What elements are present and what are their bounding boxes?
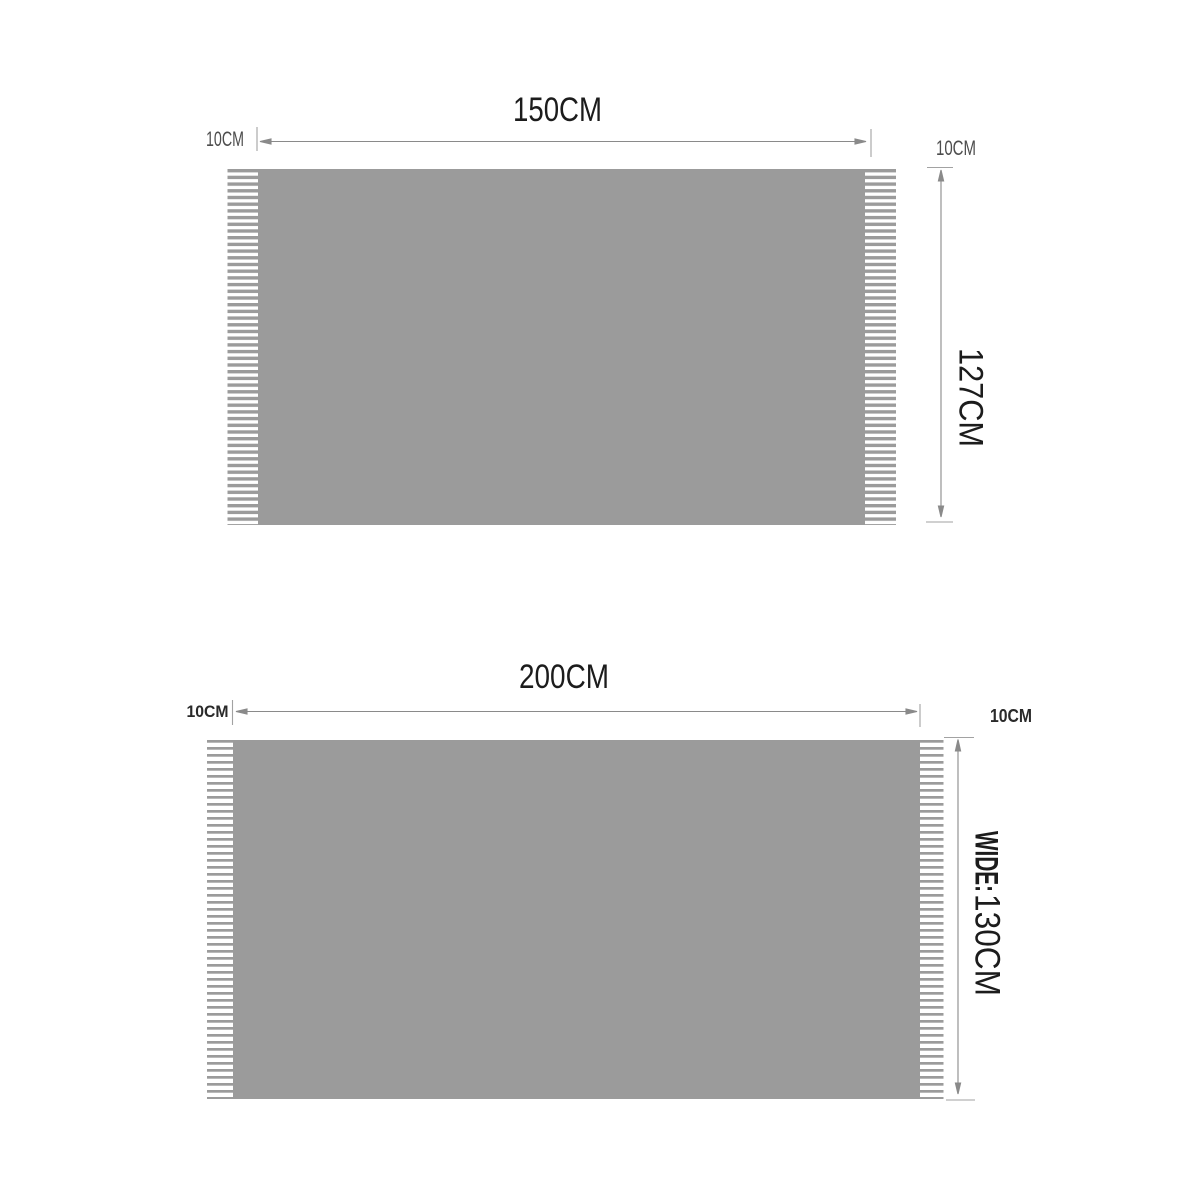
- svg-text:WIDE:: WIDE:: [969, 831, 1005, 892]
- svg-text:130CM: 130CM: [968, 894, 1007, 996]
- svg-text:127CM: 127CM: [952, 348, 990, 447]
- svg-text:150CM: 150CM: [513, 91, 602, 129]
- svg-text:200CM: 200CM: [519, 658, 609, 696]
- svg-text:10CM: 10CM: [990, 706, 1032, 726]
- svg-text:10CM: 10CM: [187, 702, 229, 721]
- svg-text:10CM: 10CM: [936, 137, 976, 160]
- svg-text:10CM: 10CM: [206, 128, 244, 151]
